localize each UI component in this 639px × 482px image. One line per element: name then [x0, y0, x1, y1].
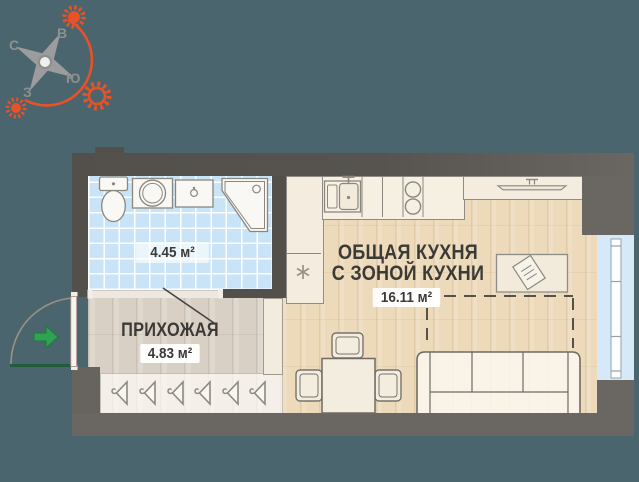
wall-left	[72, 153, 88, 297]
wall-top	[72, 153, 634, 176]
wall-nub	[95, 147, 124, 153]
floor-plan-canvas: ОБЩАЯ КУХНЯ С ЗОНОЙ КУХНИ 16.11 м² 4.45 …	[0, 0, 639, 482]
bathroom-area-label: 4.45 м²	[136, 242, 209, 263]
bathroom-floor	[88, 176, 272, 290]
kitchen-title-line2: С ЗОНОЙ КУХНИ	[322, 262, 494, 286]
wall-bottom	[72, 413, 634, 436]
hallway-title: ПРИХОЖАЯ	[118, 320, 221, 342]
wall-right-top	[582, 176, 634, 235]
compass-south-label: Ю	[66, 70, 80, 86]
wall-bottom-left	[72, 367, 100, 413]
entry-door	[10, 292, 78, 370]
hallway-area-label: 4.83 м²	[140, 344, 199, 363]
kitchen-counter	[322, 176, 465, 220]
door-leaf	[71, 297, 77, 367]
wall-bathroom-kitchen	[272, 176, 286, 290]
kitchen-area-label: 16.11 м²	[373, 288, 441, 307]
hallway-cabinet	[263, 298, 283, 375]
door-swing-arc	[11, 298, 74, 364]
compass-star-icon	[0, 17, 89, 106]
compass-rose	[0, 8, 109, 117]
sun-icon	[8, 100, 25, 117]
compass-west-label: З	[23, 84, 32, 100]
wall-bathroom-hallway	[223, 289, 286, 298]
compass-east-label: В	[57, 25, 67, 41]
entry-arrow-icon	[34, 326, 58, 348]
sun-icon	[85, 84, 109, 108]
compass-north-label: С	[9, 37, 19, 53]
tv-shelf	[463, 176, 584, 200]
sun-icon	[65, 8, 84, 27]
wardrobe-strip	[100, 373, 283, 415]
window	[597, 235, 634, 380]
kitchen-tall-cabinet	[286, 176, 324, 304]
